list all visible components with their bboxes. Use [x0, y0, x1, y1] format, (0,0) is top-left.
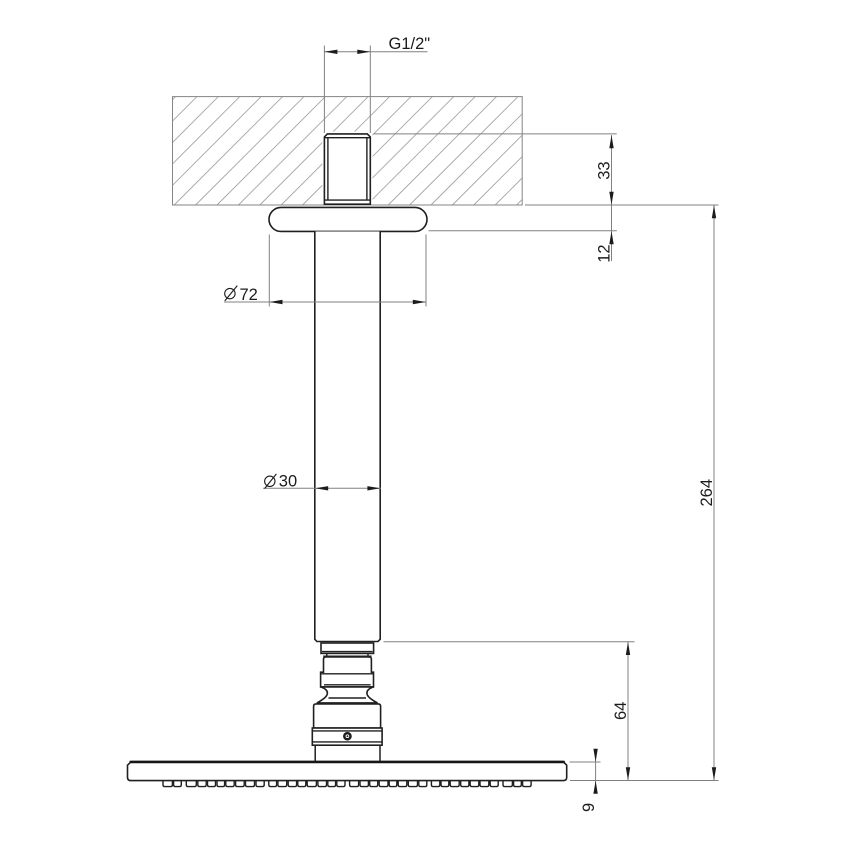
svg-text:72: 72: [240, 286, 258, 304]
svg-text:64: 64: [612, 702, 630, 720]
svg-text:9: 9: [580, 803, 598, 812]
svg-text:30: 30: [279, 473, 297, 491]
svg-text:264: 264: [698, 479, 716, 507]
svg-text:12: 12: [596, 244, 614, 262]
svg-text:33: 33: [596, 161, 614, 179]
svg-text:G1/2": G1/2": [389, 35, 431, 53]
